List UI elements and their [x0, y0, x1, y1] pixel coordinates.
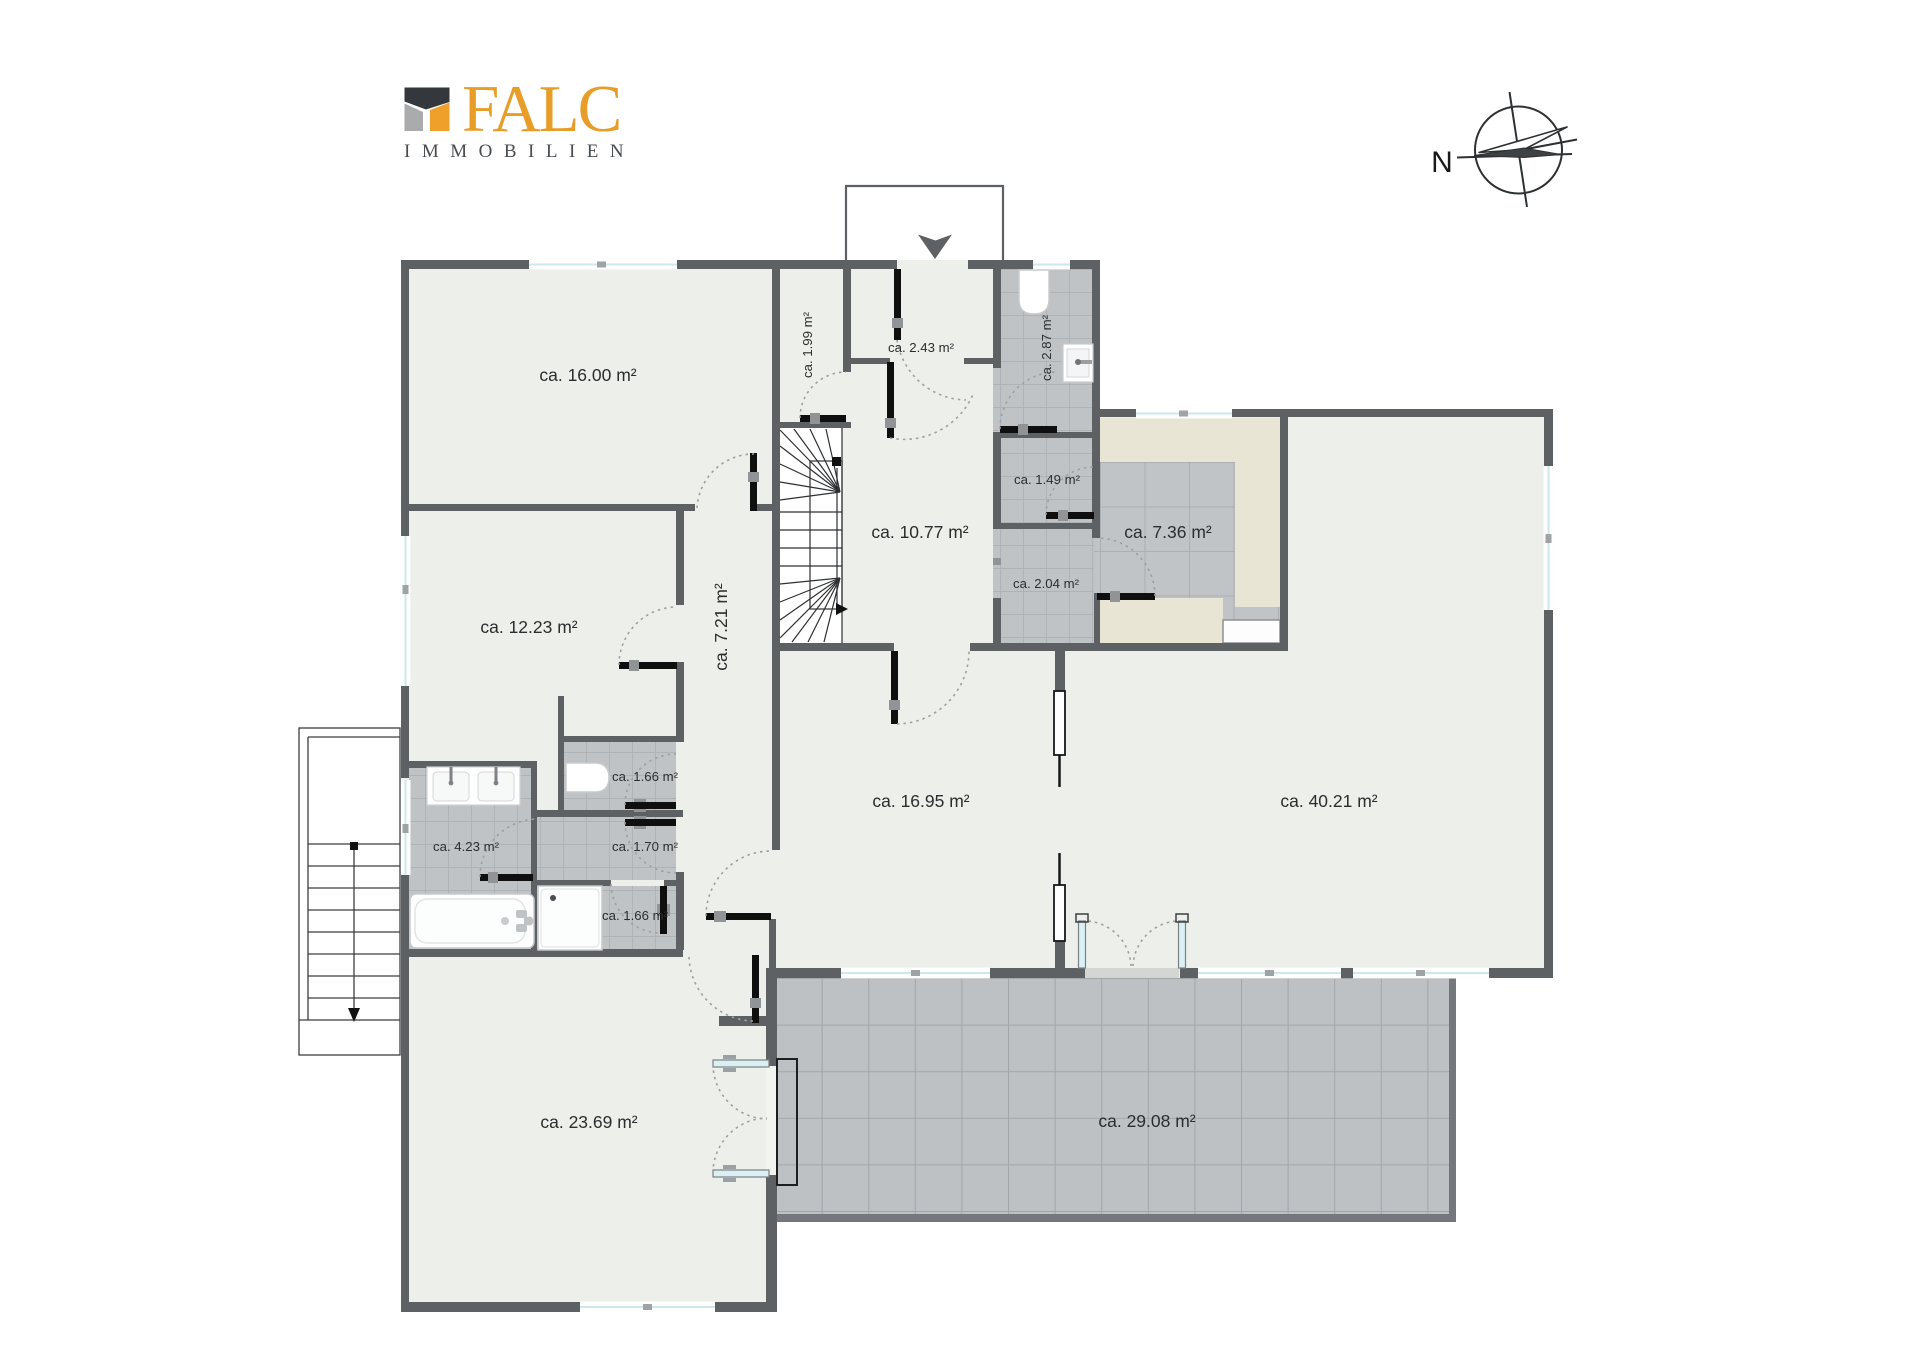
svg-text:ca. 2.43 m²: ca. 2.43 m² [888, 340, 955, 355]
svg-text:ca. 2.87 m²: ca. 2.87 m² [1039, 314, 1054, 381]
svg-text:IMMOBILIEN: IMMOBILIEN [404, 141, 635, 162]
svg-text:N: N [1431, 146, 1453, 179]
svg-text:ca. 29.08 m²: ca. 29.08 m² [1098, 1111, 1195, 1131]
svg-text:FALC: FALC [462, 72, 620, 146]
svg-text:ca. 1.70 m²: ca. 1.70 m² [612, 839, 679, 854]
svg-text:ca. 7.21 m²: ca. 7.21 m² [711, 583, 731, 671]
svg-text:ca. 1.66 m²: ca. 1.66 m² [612, 769, 679, 784]
svg-text:ca. 1.99 m²: ca. 1.99 m² [800, 311, 815, 378]
svg-text:ca. 7.36 m²: ca. 7.36 m² [1124, 522, 1212, 542]
svg-text:ca. 16.95 m²: ca. 16.95 m² [872, 791, 969, 811]
svg-text:ca. 2.04 m²: ca. 2.04 m² [1013, 576, 1080, 591]
svg-text:ca. 23.69 m²: ca. 23.69 m² [540, 1112, 637, 1132]
svg-text:ca. 16.00 m²: ca. 16.00 m² [539, 365, 636, 385]
svg-text:ca. 10.77 m²: ca. 10.77 m² [871, 522, 968, 542]
svg-text:ca. 1.49 m²: ca. 1.49 m² [1014, 472, 1081, 487]
svg-text:ca. 1.66 m²: ca. 1.66 m² [602, 908, 669, 923]
svg-text:ca. 4.23 m²: ca. 4.23 m² [433, 839, 500, 854]
svg-text:ca. 12.23 m²: ca. 12.23 m² [480, 617, 577, 637]
svg-text:ca. 40.21 m²: ca. 40.21 m² [1280, 791, 1377, 811]
